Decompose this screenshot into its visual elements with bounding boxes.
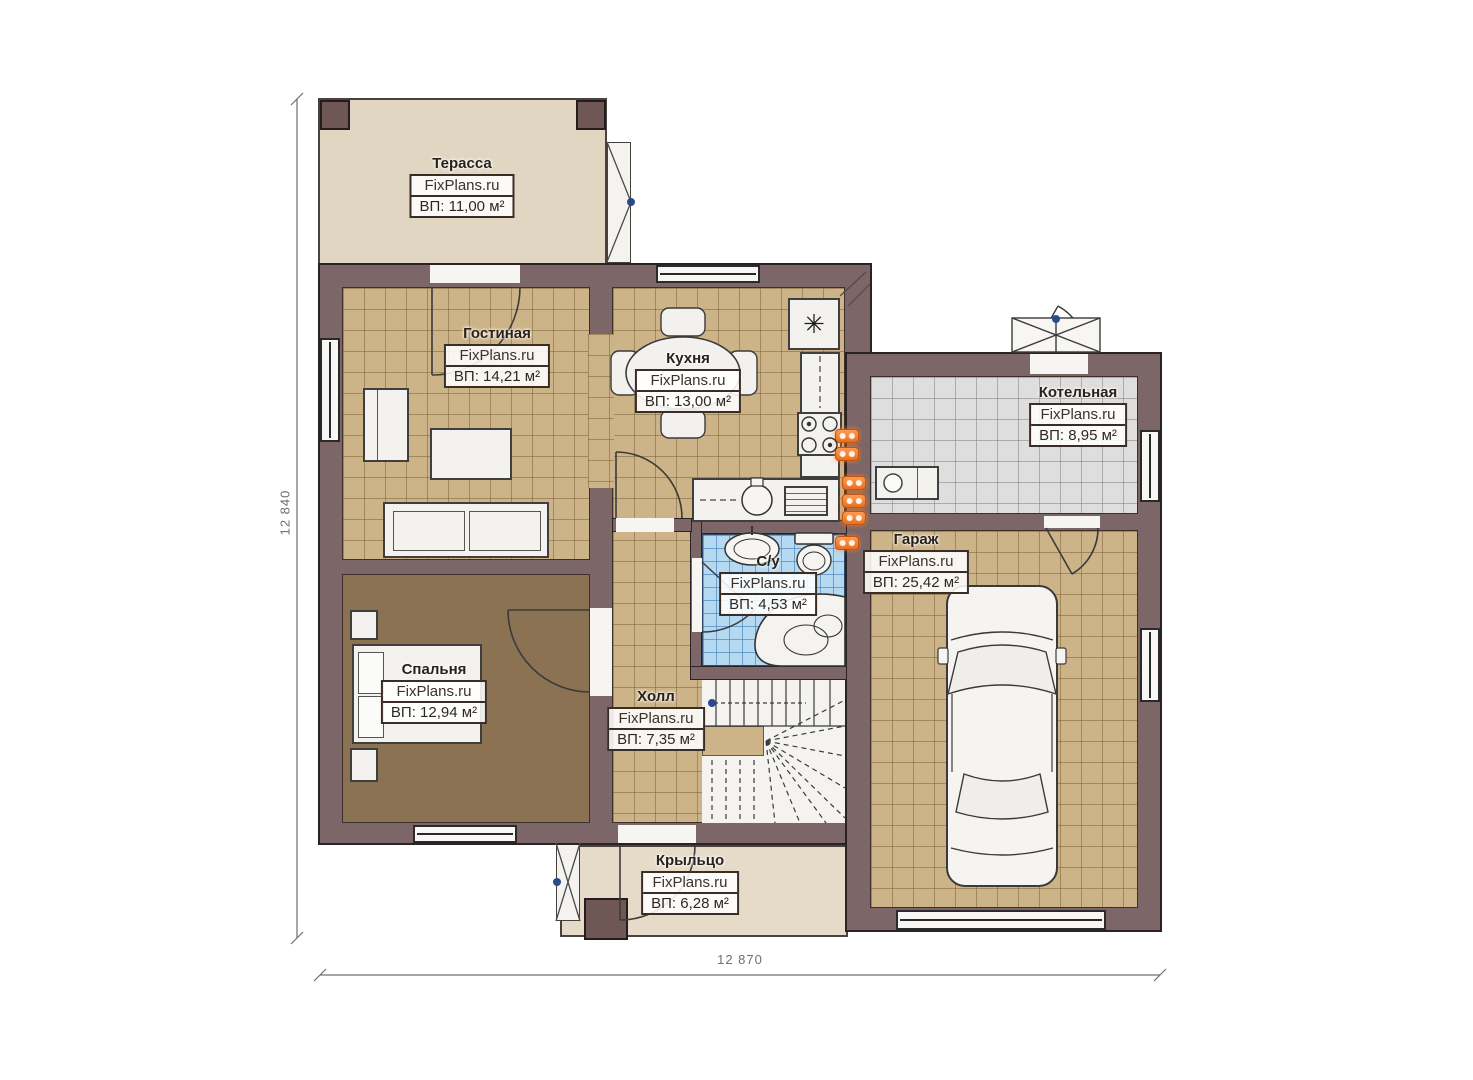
label-box: FixPlans.ru ВП: 13,00 м² <box>635 369 741 413</box>
watermark: FixPlans.ru <box>383 682 485 703</box>
room-label-kitchen: Кухня FixPlans.ru ВП: 13,00 м² <box>635 350 741 413</box>
survey-dot <box>708 699 716 707</box>
room-label-bedroom: Спальня FixPlans.ru ВП: 12,94 м² <box>381 661 487 724</box>
survey-dot <box>553 878 561 886</box>
room-area: ВП: 14,21 м² <box>446 367 548 386</box>
dimension-line-bottom <box>314 969 1166 981</box>
label-box: FixPlans.ru ВП: 25,42 м² <box>863 550 969 594</box>
corner-marks <box>840 272 870 306</box>
room-name: С/у <box>719 553 817 570</box>
room-area: ВП: 12,94 м² <box>383 703 485 722</box>
room-label-living: Гостиная FixPlans.ru ВП: 14,21 м² <box>444 325 550 388</box>
room-name: Котельная <box>1029 384 1127 401</box>
label-box: FixPlans.ru ВП: 12,94 м² <box>381 680 487 724</box>
kitchen-door-arc <box>616 452 682 518</box>
room-area: ВП: 8,95 м² <box>1031 426 1125 445</box>
boiler-dial <box>884 474 902 492</box>
watermark: FixPlans.ru <box>865 552 967 573</box>
survey-dot <box>627 198 635 206</box>
car-mirror <box>938 648 948 664</box>
kitchen-sink <box>742 478 772 515</box>
label-box: FixPlans.ru ВП: 14,21 м² <box>444 344 550 388</box>
porch-steps-marks <box>553 843 580 921</box>
room-name: Холл <box>607 688 705 705</box>
dimension-bottom: 12 870 <box>690 952 790 967</box>
terrace-steps-marks <box>607 142 635 262</box>
room-area: ВП: 13,00 м² <box>637 392 739 411</box>
survey-dot <box>1052 315 1060 323</box>
room-area: ВП: 4,53 м² <box>721 595 815 614</box>
room-label-hall: Холл FixPlans.ru ВП: 7,35 м² <box>607 688 705 751</box>
room-name: Гостиная <box>444 325 550 342</box>
room-name: Кухня <box>635 350 741 367</box>
room-area: ВП: 25,42 м² <box>865 573 967 592</box>
watermark: FixPlans.ru <box>1031 405 1125 426</box>
room-name: Спальня <box>381 661 487 678</box>
room-area: ВП: 11,00 м² <box>411 197 512 216</box>
watermark: FixPlans.ru <box>446 346 548 367</box>
room-area: ВП: 6,28 м² <box>643 894 737 913</box>
garage-door-arc <box>1046 528 1098 574</box>
car-mirror <box>1056 648 1066 664</box>
dimension-left: 12 840 <box>278 468 293 558</box>
stove-burners <box>802 417 837 452</box>
label-box: FixPlans.ru ВП: 11,00 м² <box>409 174 514 218</box>
room-area: ВП: 7,35 м² <box>609 730 703 749</box>
room-name: Гараж <box>863 531 969 548</box>
label-box: FixPlans.ru ВП: 6,28 м² <box>641 871 739 915</box>
room-label-porch: Крыльцо FixPlans.ru ВП: 6,28 м² <box>641 852 739 915</box>
room-label-boiler: Котельная FixPlans.ru ВП: 8,95 м² <box>1029 384 1127 447</box>
room-label-terrace: Терасса FixPlans.ru ВП: 11,00 м² <box>409 155 514 218</box>
staircase <box>702 680 845 823</box>
car <box>938 586 1066 886</box>
room-label-garage: Гараж FixPlans.ru ВП: 25,42 м² <box>863 531 969 594</box>
dimension-line-left <box>291 93 303 944</box>
watermark: FixPlans.ru <box>411 176 512 197</box>
room-name: Терасса <box>409 155 514 172</box>
bedroom-door-arc <box>508 610 590 692</box>
label-box: FixPlans.ru ВП: 4,53 м² <box>719 572 817 616</box>
floor-plan-canvas: ✳ <box>0 0 1473 1080</box>
watermark: FixPlans.ru <box>721 574 815 595</box>
room-name: Крыльцо <box>641 852 739 869</box>
label-box: FixPlans.ru ВП: 8,95 м² <box>1029 403 1127 447</box>
watermark: FixPlans.ru <box>637 371 739 392</box>
watermark: FixPlans.ru <box>609 709 703 730</box>
label-box: FixPlans.ru ВП: 7,35 м² <box>607 707 705 751</box>
plan-linework <box>0 0 1473 1080</box>
room-label-bathroom: С/у FixPlans.ru ВП: 4,53 м² <box>719 553 817 616</box>
watermark: FixPlans.ru <box>643 873 737 894</box>
vent-window <box>1012 315 1100 352</box>
